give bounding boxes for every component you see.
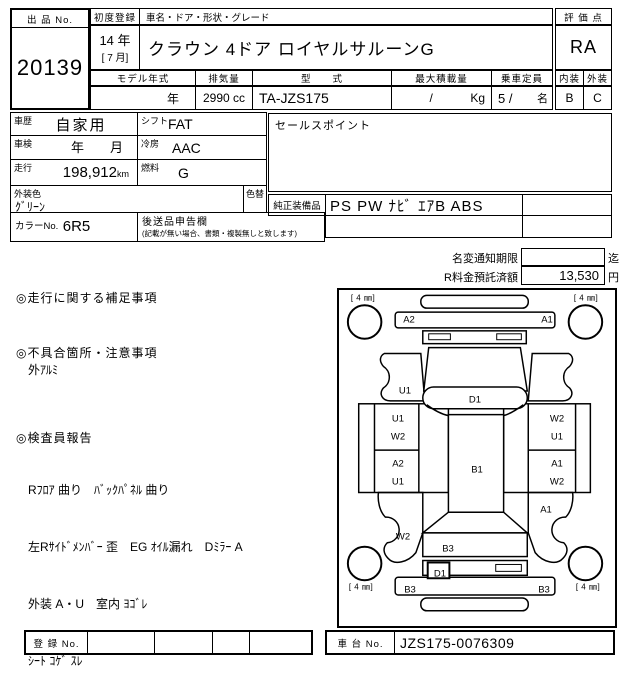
max-load-unit: Kg xyxy=(470,91,491,105)
front-panel-strip xyxy=(395,312,555,328)
diagram-label-10: A2 xyxy=(392,459,404,470)
shift-cell: シフト FAT xyxy=(137,112,267,136)
defect-title: ◎不具合箇所・注意事項 xyxy=(16,344,157,361)
model-year-value: 年 xyxy=(90,86,196,110)
diagram-label-7: W2 xyxy=(391,432,405,443)
exterior-label: 外装 xyxy=(583,70,612,86)
name-change-box xyxy=(521,248,605,266)
color-no-value: 6R5 xyxy=(63,218,91,235)
rear-bumper-bar xyxy=(421,598,528,611)
rear-bumper-strip xyxy=(395,577,555,595)
later-items-cell: 後送品申告欄 (記載が無い場合、書類・複製無しと致します) xyxy=(137,212,325,242)
reg-no-box: 登 録 No. xyxy=(24,630,313,655)
model-code-label: 型 式 xyxy=(252,70,392,86)
rear-right-wheel-icon xyxy=(569,547,603,581)
front-right-fender xyxy=(528,354,572,401)
sales-point-label: セールスポイント xyxy=(269,114,611,133)
recycle-label: R料金預託済額 xyxy=(400,269,518,285)
front-bumper-bar xyxy=(421,295,528,308)
diagram-label-9: U1 xyxy=(551,432,563,443)
auction-no-value: 20139 xyxy=(12,28,88,108)
diagram-label-5: D1 xyxy=(469,395,481,406)
color-change-cell: 色替 xyxy=(243,185,267,213)
mileage-cell: 走行 198,912km xyxy=(10,159,138,186)
headlight-left xyxy=(429,334,451,340)
name-change-suffix: 迄 xyxy=(608,250,619,266)
tread-depth-label-21: [ 4 ㎜] xyxy=(349,582,373,593)
mileage-unit: km xyxy=(117,169,129,179)
inspector-report-line: Rﾌﾛｱ 曲り ﾊﾞｯｸﾊﾟﾈﾙ 曲り xyxy=(28,481,328,500)
displacement-value: 2990 cc xyxy=(195,86,253,110)
history-cell: 車歴 自家用 xyxy=(10,112,138,136)
first-reg-label: 初度登録 xyxy=(90,8,140,25)
model-year-label: モデル年式 xyxy=(90,70,196,86)
damage-diagram: [ 4 ㎜][ 4 ㎜]A2A1U1D1U1W2W2U1A2U1A1W2B1A1… xyxy=(337,288,617,628)
mileage-value: 198,912 xyxy=(63,164,117,181)
car-outline-drawing xyxy=(339,290,615,626)
diagram-label-17: B3 xyxy=(442,544,454,555)
model-code-value: TA-JZS175 xyxy=(252,86,392,110)
color-label: 外装色 xyxy=(14,187,41,200)
max-load-label: 最大積載量 xyxy=(391,70,492,86)
tread-depth-label-0: [ 4 ㎜] xyxy=(351,293,375,304)
car-name-value: クラウン 4ドア ロイヤルサルーンG xyxy=(139,25,553,70)
history-label: 車歴 xyxy=(14,114,32,127)
diagram-label-12: A1 xyxy=(551,459,563,470)
mileage-note-title: ◎走行に関する補足事項 xyxy=(16,289,157,306)
equipment-value: PS PW ﾅﾋﾞ ｴｱB ABS xyxy=(325,194,523,216)
sales-point-cell: セールスポイント xyxy=(268,113,612,192)
diagram-label-8: W2 xyxy=(550,414,564,425)
trunk-panel xyxy=(423,533,527,557)
diagram-label-16: W2 xyxy=(396,532,410,543)
inspector-report-line: 左Rｻｲﾄﾞﾒﾝﾊﾞｰ 歪 EG ｵｲﾙ漏れ Dﾐﾗｰ A xyxy=(28,538,328,557)
recycle-unit: 円 xyxy=(608,269,619,285)
inspection-label: 車検 xyxy=(14,137,32,150)
chassis-no-value: JZS175-0076309 xyxy=(400,632,514,653)
equipment-extra-cell xyxy=(325,215,523,238)
mileage-label: 走行 xyxy=(14,161,32,174)
fuel-label: 燃料 xyxy=(141,161,159,174)
diagram-label-11: U1 xyxy=(392,477,404,488)
recycle-value: 13,530 xyxy=(521,266,605,285)
interior-label: 内装 xyxy=(555,70,584,86)
color-no-cell: カラーNo. 6R5 xyxy=(10,212,138,242)
front-left-wheel-icon xyxy=(348,305,382,339)
reg-no-divider xyxy=(212,632,213,653)
inspector-report-line: 外装 A・U 室内 ﾖｺﾞﾚ xyxy=(28,595,328,614)
grade-value: RA xyxy=(555,25,612,70)
displacement-label: 排気量 xyxy=(195,70,253,86)
diagram-label-20: B3 xyxy=(538,585,550,596)
auction-sheet: 出 品 No. 20139 初度登録 車名・ドア・形状・グレード 14 年 [ … xyxy=(0,0,640,680)
diagram-label-2: A2 xyxy=(403,315,415,326)
right-option-cell-1 xyxy=(522,194,612,216)
diagram-label-19: B3 xyxy=(404,585,416,596)
roof-panel xyxy=(448,415,503,513)
chassis-no-box: 車 台 No. JZS175-0076309 xyxy=(325,630,615,655)
interior-grade: B xyxy=(555,86,584,110)
reg-no-label: 登 録 No. xyxy=(26,632,88,653)
diagram-label-13: W2 xyxy=(550,477,564,488)
reg-no-divider xyxy=(154,632,155,653)
tread-depth-label-22: [ 4 ㎜] xyxy=(576,582,600,593)
max-load-value: / Kg xyxy=(391,86,492,110)
exterior-grade: C xyxy=(583,86,612,110)
rear-window-panel xyxy=(423,512,527,533)
diagram-label-3: A1 xyxy=(541,315,553,326)
later-items-note: (記載が無い場合、書類・複製無しと致します) xyxy=(138,228,324,239)
inspection-cell: 車検 年 月 xyxy=(10,135,138,160)
color-change-label: 色替 xyxy=(246,187,264,200)
front-right-wheel-icon xyxy=(569,305,603,339)
grade-label: 評 価 点 xyxy=(555,8,612,25)
ac-label: 冷房 xyxy=(141,137,159,150)
capacity-value-cell: 5 / 名 xyxy=(491,86,553,110)
capacity-label: 乗車定員 xyxy=(491,70,553,86)
diagram-label-14: B1 xyxy=(471,465,483,476)
first-reg-month: [ 7 月] xyxy=(91,49,139,64)
shift-label: シフト xyxy=(141,114,168,127)
max-load-slash: / xyxy=(392,91,470,105)
reg-no-divider xyxy=(249,632,250,653)
color-value: ｸﾞﾘｰﾝ xyxy=(11,186,243,215)
diagram-label-18: D1 xyxy=(434,569,446,580)
ac-cell: 冷房 AAC xyxy=(137,135,267,160)
rear-right-quarter xyxy=(528,493,573,563)
first-reg-value: 14 年 [ 7 月] xyxy=(90,25,140,70)
auction-no-box: 出 品 No. 20139 xyxy=(10,8,90,110)
chassis-no-label: 車 台 No. xyxy=(327,632,395,653)
capacity-unit: 名 xyxy=(537,90,552,106)
right-option-cell-2 xyxy=(522,215,612,238)
car-name-label: 車名・ドア・形状・グレード xyxy=(139,8,553,25)
capacity-value: 5 / xyxy=(492,91,537,106)
defect-item: 外ｱﾙﾐ xyxy=(28,361,58,378)
hood-panel xyxy=(424,348,528,391)
diagram-label-4: U1 xyxy=(399,386,411,397)
color-no-label: カラーNo. xyxy=(15,221,58,232)
auction-no-label: 出 品 No. xyxy=(12,10,88,28)
tread-depth-label-1: [ 4 ㎜] xyxy=(574,293,598,304)
diagram-label-6: U1 xyxy=(392,414,404,425)
taillight-right xyxy=(496,564,522,571)
name-change-label: 名変通知期限 xyxy=(400,250,518,266)
equipment-label: 純正装備品 xyxy=(268,194,326,216)
rear-left-wheel-icon xyxy=(348,547,382,581)
color-cell: 外装色 ｸﾞﾘｰﾝ xyxy=(10,185,244,213)
headlight-right xyxy=(497,334,522,340)
rear-left-quarter xyxy=(378,493,423,563)
diagram-label-15: A1 xyxy=(540,505,552,516)
first-reg-year: 14 年 xyxy=(91,30,139,49)
fuel-cell: 燃料 G xyxy=(137,159,267,186)
